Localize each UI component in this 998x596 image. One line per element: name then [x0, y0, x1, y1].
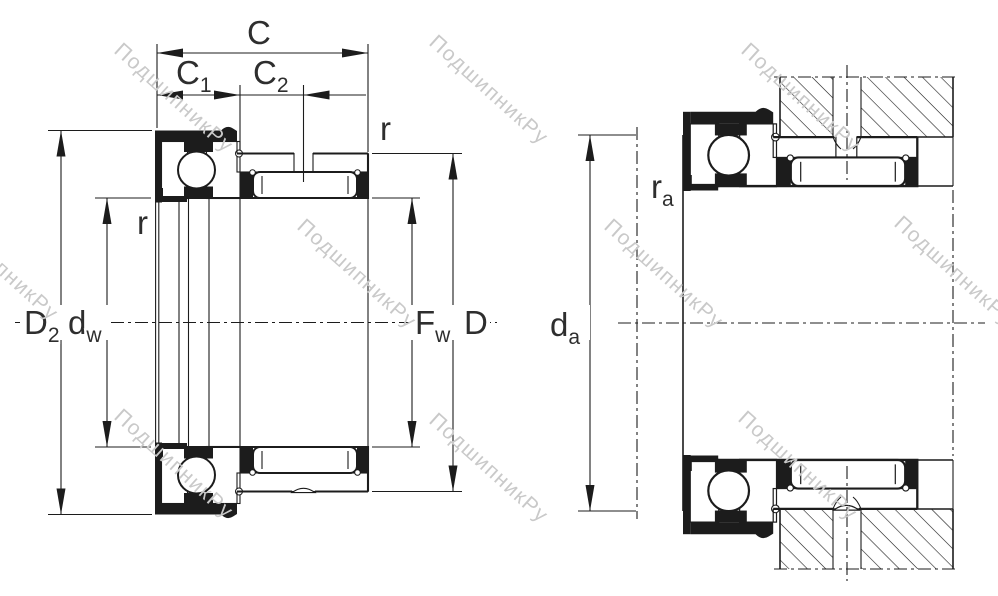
watermark-text: ПодшипникРу — [0, 207, 63, 326]
watermark-text: ПодшипникРу — [737, 39, 865, 158]
watermark-text: ПодшипникРу — [425, 409, 553, 528]
watermarks: ПодшипникРу ПодшипникРу ПодшипникРу Подш… — [0, 31, 998, 528]
watermark-text: ПодшипникРу — [890, 212, 998, 331]
label-C2: C2 — [253, 54, 289, 97]
watermark-text: ПодшипникРу — [600, 215, 728, 334]
label-D: D — [464, 304, 488, 341]
right-view-mounting-section: ra da — [546, 65, 985, 581]
technical-drawing-page: C C1 C2 r r D2 dw Fw D — [0, 0, 998, 596]
label-r-bore: r — [137, 204, 148, 241]
label-r-od: r — [380, 110, 391, 147]
left-view-dimensioned-section: C C1 C2 r r D2 dw Fw D — [15, 14, 497, 518]
watermark-text: ПодшипникРу — [293, 215, 421, 334]
bearing-drawing: C C1 C2 r r D2 dw Fw D — [0, 0, 998, 596]
label-ra: ra — [651, 168, 674, 211]
watermark-text: ПодшипникРу — [425, 31, 553, 150]
label-C: C — [247, 14, 271, 51]
